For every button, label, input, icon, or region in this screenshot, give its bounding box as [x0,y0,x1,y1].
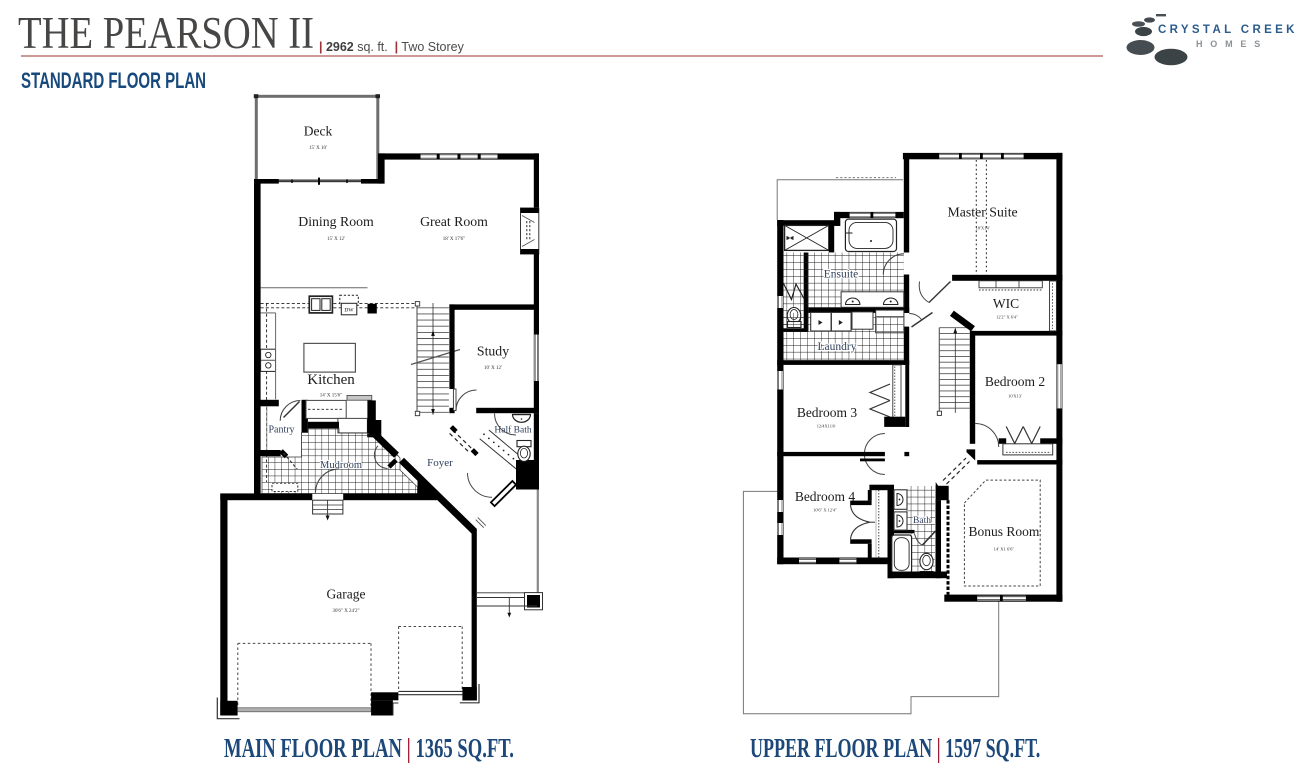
svg-text:Bonus Room: Bonus Room [969,524,1040,539]
svg-text:30'6" X 24'2": 30'6" X 24'2" [333,609,360,614]
svg-text:Master Suite: Master Suite [948,205,1018,220]
svg-text:12/4X11/0: 12/4X11/0 [817,424,836,429]
svg-text:Laundry: Laundry [818,341,857,353]
svg-text:10'6" X 12'4": 10'6" X 12'4" [813,508,837,513]
svg-text:Bedroom 4: Bedroom 4 [795,489,856,504]
svg-text:14' X1 6'6": 14' X1 6'6" [994,547,1015,552]
svg-text:14' X 15'6": 14' X 15'6" [320,394,342,399]
svg-text:18' X 17'6": 18' X 17'6" [443,237,465,242]
svg-text:15' X 10': 15' X 10' [309,146,327,151]
svg-text:Half Bath: Half Bath [494,425,531,436]
svg-text:10'X13': 10'X13' [1008,394,1022,399]
svg-text:18'X14': 18'X14' [976,226,990,231]
svg-text:Bedroom 3: Bedroom 3 [797,405,858,420]
svg-text:10' X 12': 10' X 12' [484,366,502,371]
svg-text:Garage: Garage [327,587,366,602]
svg-text:DW: DW [344,308,354,314]
svg-text:Study: Study [477,344,509,359]
svg-text:Deck: Deck [304,124,333,139]
svg-text:Foyer: Foyer [427,457,453,469]
svg-text:Bath: Bath [913,516,931,526]
svg-text:Pantry: Pantry [268,425,294,436]
svg-text:Mudroom: Mudroom [320,460,362,471]
svg-text:Ensuite: Ensuite [824,269,859,281]
svg-text:WIC: WIC [993,296,1019,311]
svg-text:Great Room: Great Room [420,214,488,229]
svg-text:12'2" X 6'4": 12'2" X 6'4" [996,315,1018,320]
svg-text:Bedroom 2: Bedroom 2 [985,374,1045,389]
svg-text:Dining Room: Dining Room [298,214,374,229]
svg-text:Kitchen: Kitchen [307,372,355,388]
svg-text:15' X 12': 15' X 12' [327,237,345,242]
